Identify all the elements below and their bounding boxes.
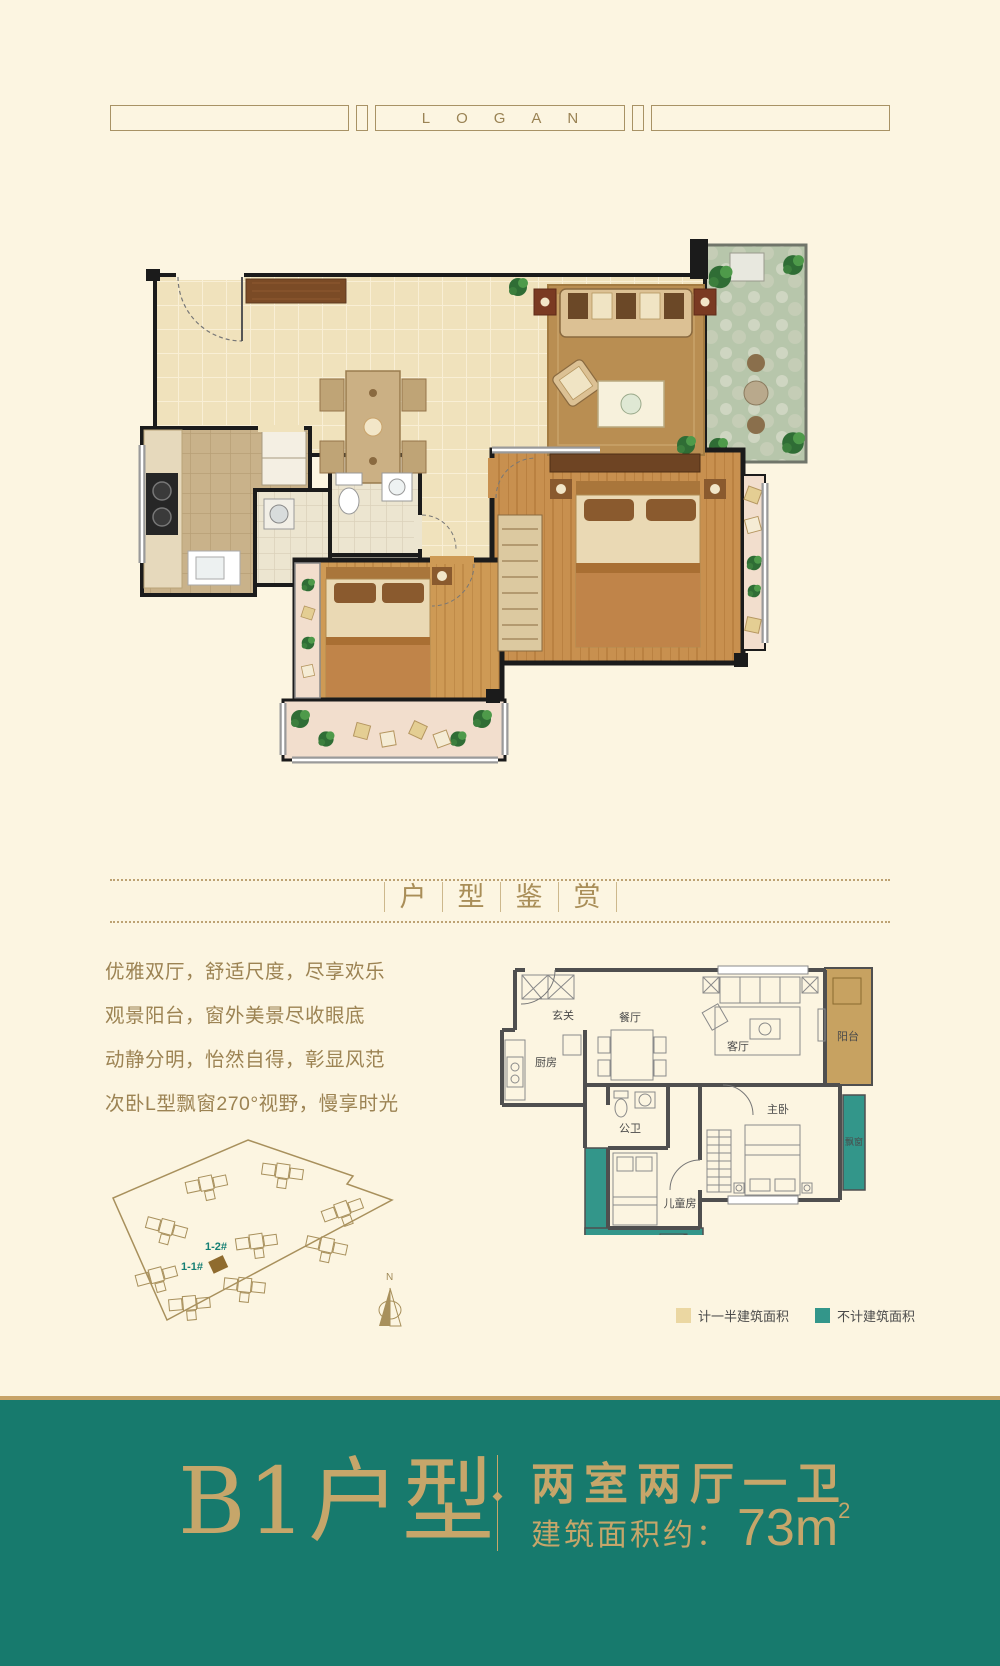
toilet-tank (336, 473, 362, 485)
description-line: 次卧L型飘窗270°视野，慢享时光 (105, 1094, 445, 1115)
area-superscript: 2 (838, 1498, 850, 1523)
brand-logo: LOGAN (375, 105, 625, 131)
dining-chair (402, 379, 426, 411)
dotted-rule-top (110, 879, 890, 881)
section-title-char: 户 (384, 882, 442, 912)
unit-name: B1户型 (178, 1443, 478, 1563)
highlighted-building (208, 1255, 228, 1274)
unit-area: 建筑面积约： 73m2 (531, 1498, 951, 1558)
balcony-floor (283, 700, 505, 760)
section-title-char: 赏 (558, 882, 617, 912)
logo-right-rule (651, 105, 890, 131)
compass-label: N (386, 1272, 393, 1283)
area-label: 建筑面积约： (531, 1510, 729, 1554)
master-bed-headboard (576, 481, 700, 495)
logo-right-tick (632, 105, 644, 131)
legend-item-half-area: 计一半建筑面积 (676, 1306, 789, 1325)
bath-door-gap (414, 515, 422, 549)
dining-chair (320, 379, 344, 411)
patio-table (744, 381, 768, 405)
dg-label-entry: 玄关 (552, 1008, 574, 1022)
dg-label-master: 主卧 (767, 1103, 789, 1116)
tv-console (550, 454, 700, 472)
wardrobe (498, 515, 542, 651)
legend-label-half: 计一半建筑面积 (698, 1306, 789, 1325)
legend-swatch-excluded (815, 1308, 830, 1323)
description-line: 优雅双厅，舒适尺度，尽享欢乐 (105, 962, 445, 983)
description-line: 观景阳台，窗外美景尽收眼底 (105, 1006, 445, 1027)
dg-label-bay-bottom: 飘窗 (613, 1234, 631, 1235)
patio-planter (730, 253, 764, 281)
section-title-char: 鉴 (500, 882, 558, 912)
dg-label-living: 客厅 (727, 1039, 749, 1053)
bed2-door-gap (430, 556, 474, 564)
site-plan: 1-1# 1-2# N (95, 1128, 405, 1338)
description-line: 动静分明，怡然自得，彰显风范 (105, 1050, 445, 1071)
logo-left-rule (110, 105, 349, 131)
footer-divider (497, 1455, 498, 1551)
compass: N (379, 1272, 401, 1326)
dg-label-bay-right: 飘窗 (845, 1136, 863, 1147)
legend-item-excluded: 不计建筑面积 (815, 1306, 915, 1325)
main-floor-plan (130, 233, 820, 768)
header-logo-strip: LOGAN (110, 105, 890, 131)
master-door-gap (488, 458, 496, 498)
floor-plan-diagram: 玄关 餐厅 厨房 客厅 公卫 主卧 儿童房 阳台 飘窗 飘窗 (478, 945, 878, 1235)
dining-chair (402, 441, 426, 473)
dg-label-kitchen: 厨房 (535, 1056, 557, 1069)
dg-label-kids: 儿童房 (664, 1196, 697, 1210)
dotted-rule-bottom (110, 921, 890, 923)
dg-label-balcony: 阳台 (837, 1029, 859, 1043)
section-title-char: 型 (442, 882, 500, 912)
patio-chair (747, 416, 765, 434)
building-label-1-1: 1-1# (181, 1261, 203, 1273)
entry-opening (176, 270, 244, 280)
dg-window (718, 966, 808, 974)
section-title: 户型鉴赏 (0, 882, 1000, 913)
logo-left-tick (356, 105, 368, 131)
dining-chair (320, 441, 344, 473)
poster-page: LOGAN (0, 0, 1000, 1666)
area-value: 73m2 (737, 1498, 850, 1558)
toilet (339, 488, 359, 514)
legend: 计一半建筑面积 不计建筑面积 (655, 1306, 915, 1325)
dg-label-dining: 餐厅 (619, 1010, 641, 1024)
legend-label-excluded: 不计建筑面积 (837, 1306, 915, 1325)
patio-chair (747, 354, 765, 372)
bed2-headboard (326, 567, 430, 579)
building-label-1-2: 1-2# (205, 1241, 227, 1253)
legend-swatch-half (676, 1308, 691, 1323)
dg-window (728, 1196, 798, 1204)
description-block: 优雅双厅，舒适尺度，尽享欢乐 观景阳台，窗外美景尽收眼底 动静分明，怡然自得，彰… (105, 962, 445, 1138)
dg-bay-left (585, 1148, 608, 1235)
dg-balcony (825, 968, 872, 1085)
dg-label-bath: 公卫 (619, 1123, 641, 1135)
kitchen-opening (258, 425, 304, 432)
